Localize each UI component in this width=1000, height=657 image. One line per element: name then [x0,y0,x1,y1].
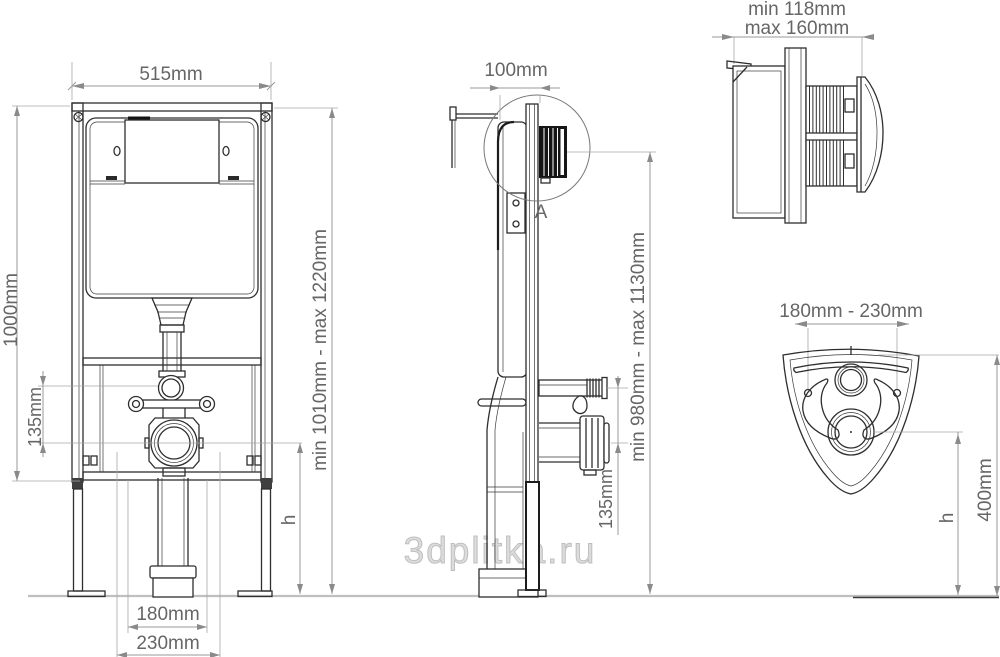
dim-depth-100: 100mm [470,60,560,120]
drain-flange [145,418,203,476]
fixing-rod-bar [136,400,207,408]
dim-plate-spacing: 180mm - 230mm [779,301,923,389]
cistern-side [498,122,527,377]
front-view: 515mm 1000mm 135mm h min 1010mm - max 12… [1,62,338,657]
dim-label-width: 515mm [139,64,202,85]
watermark-text: 3dplitka.ru [404,530,597,571]
leg-clamp [261,478,272,489]
dim-label-bolt-spacing-inner: 180mm [136,604,199,625]
bowl-connection [129,371,215,597]
water-supply-pipe [450,107,498,168]
detail-view: min 118mm max 160mm [712,0,883,223]
dim-label-offset-side: 135mm [596,469,616,529]
dim-bolt-spacing-180: 180mm [128,480,207,633]
dim-width-515: 515mm [68,62,275,100]
dim-label-plate-outlet-height: h [937,513,958,524]
wall-panel [785,48,806,223]
side-view: A 100mm [450,60,656,597]
cistern [86,117,258,372]
dim-label-outlet-height-front: h [279,515,300,526]
dim-label-plate-height: 400mm [975,458,996,521]
dim-label-bolt-spacing-outer: 230mm [136,633,199,654]
dim-label-offset-front: 135mm [25,387,45,447]
dim-label-depth: 100mm [484,60,547,81]
dim-plate-outlet-height: h [874,432,963,595]
inspection-box [125,120,219,183]
installation-drawing: 3dplitka.ru [0,0,1000,657]
extension-bellows [806,86,857,186]
dim-label-install-height-front: min 1010mm - max 1220mm [310,229,331,471]
dim-label-max-depth: max 160mm [745,18,850,39]
inlet-valve-side [539,378,607,414]
mounting-plate [783,346,919,494]
flush-plate-profile [857,77,883,192]
fixing-rod-side [478,399,526,406]
dim-label-plate-spacing: 180mm - 230mm [779,301,923,322]
outlet-flange-side [539,416,609,475]
dim-plate-height-400: 400mm [878,355,1000,596]
dim-label-min-depth: min 118mm [748,0,846,20]
frame-leg [262,489,271,591]
drain-pipe [150,478,196,597]
frame-leg [74,489,83,591]
drawing-canvas: 3dplitka.ru [0,0,1000,657]
detail-marker-label: A [535,202,548,223]
leg-clamp [72,478,83,489]
frame-leg-side [526,482,539,590]
plate-view: 180mm - 230mm h [779,301,1000,596]
flush-bend [152,298,192,371]
dim-label-frame-height: 1000mm [1,273,22,347]
dim-outlet-height-front: h [279,443,303,594]
dim-label-install-height-side: min 980mm - max 1130mm [628,232,649,462]
flush-plate-recess [539,126,567,183]
cistern-detail [727,61,785,218]
